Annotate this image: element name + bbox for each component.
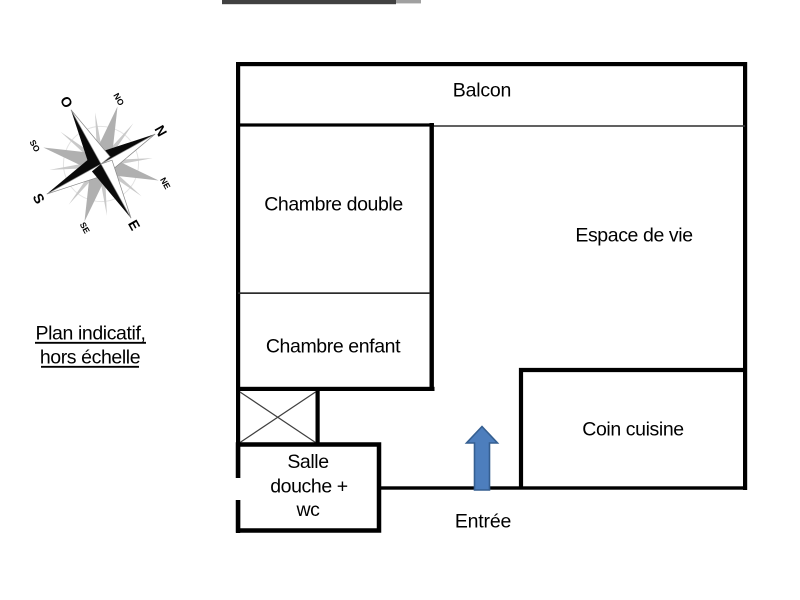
svg-text:douche +: douche + xyxy=(270,476,348,498)
svg-text:Coin cuisine: Coin cuisine xyxy=(582,419,683,441)
svg-text:hors échelle: hors échelle xyxy=(40,347,140,369)
svg-text:Salle: Salle xyxy=(287,451,328,473)
svg-text:SE: SE xyxy=(78,220,92,235)
svg-text:NO: NO xyxy=(111,91,126,107)
svg-text:NE: NE xyxy=(158,176,173,191)
svg-text:Chambre enfant: Chambre enfant xyxy=(266,336,401,358)
svg-text:Entrée: Entrée xyxy=(455,511,511,533)
svg-text:N: N xyxy=(151,122,170,139)
svg-text:Balcon: Balcon xyxy=(453,80,511,102)
svg-text:O: O xyxy=(57,93,76,110)
svg-text:wc: wc xyxy=(295,499,320,521)
svg-text:S: S xyxy=(30,190,49,206)
svg-text:Chambre double: Chambre double xyxy=(264,194,403,216)
svg-text:Plan indicatif,: Plan indicatif, xyxy=(36,323,146,345)
svg-text:Espace de vie: Espace de vie xyxy=(575,225,692,247)
svg-text:SO: SO xyxy=(28,138,43,154)
svg-text:E: E xyxy=(125,217,144,233)
